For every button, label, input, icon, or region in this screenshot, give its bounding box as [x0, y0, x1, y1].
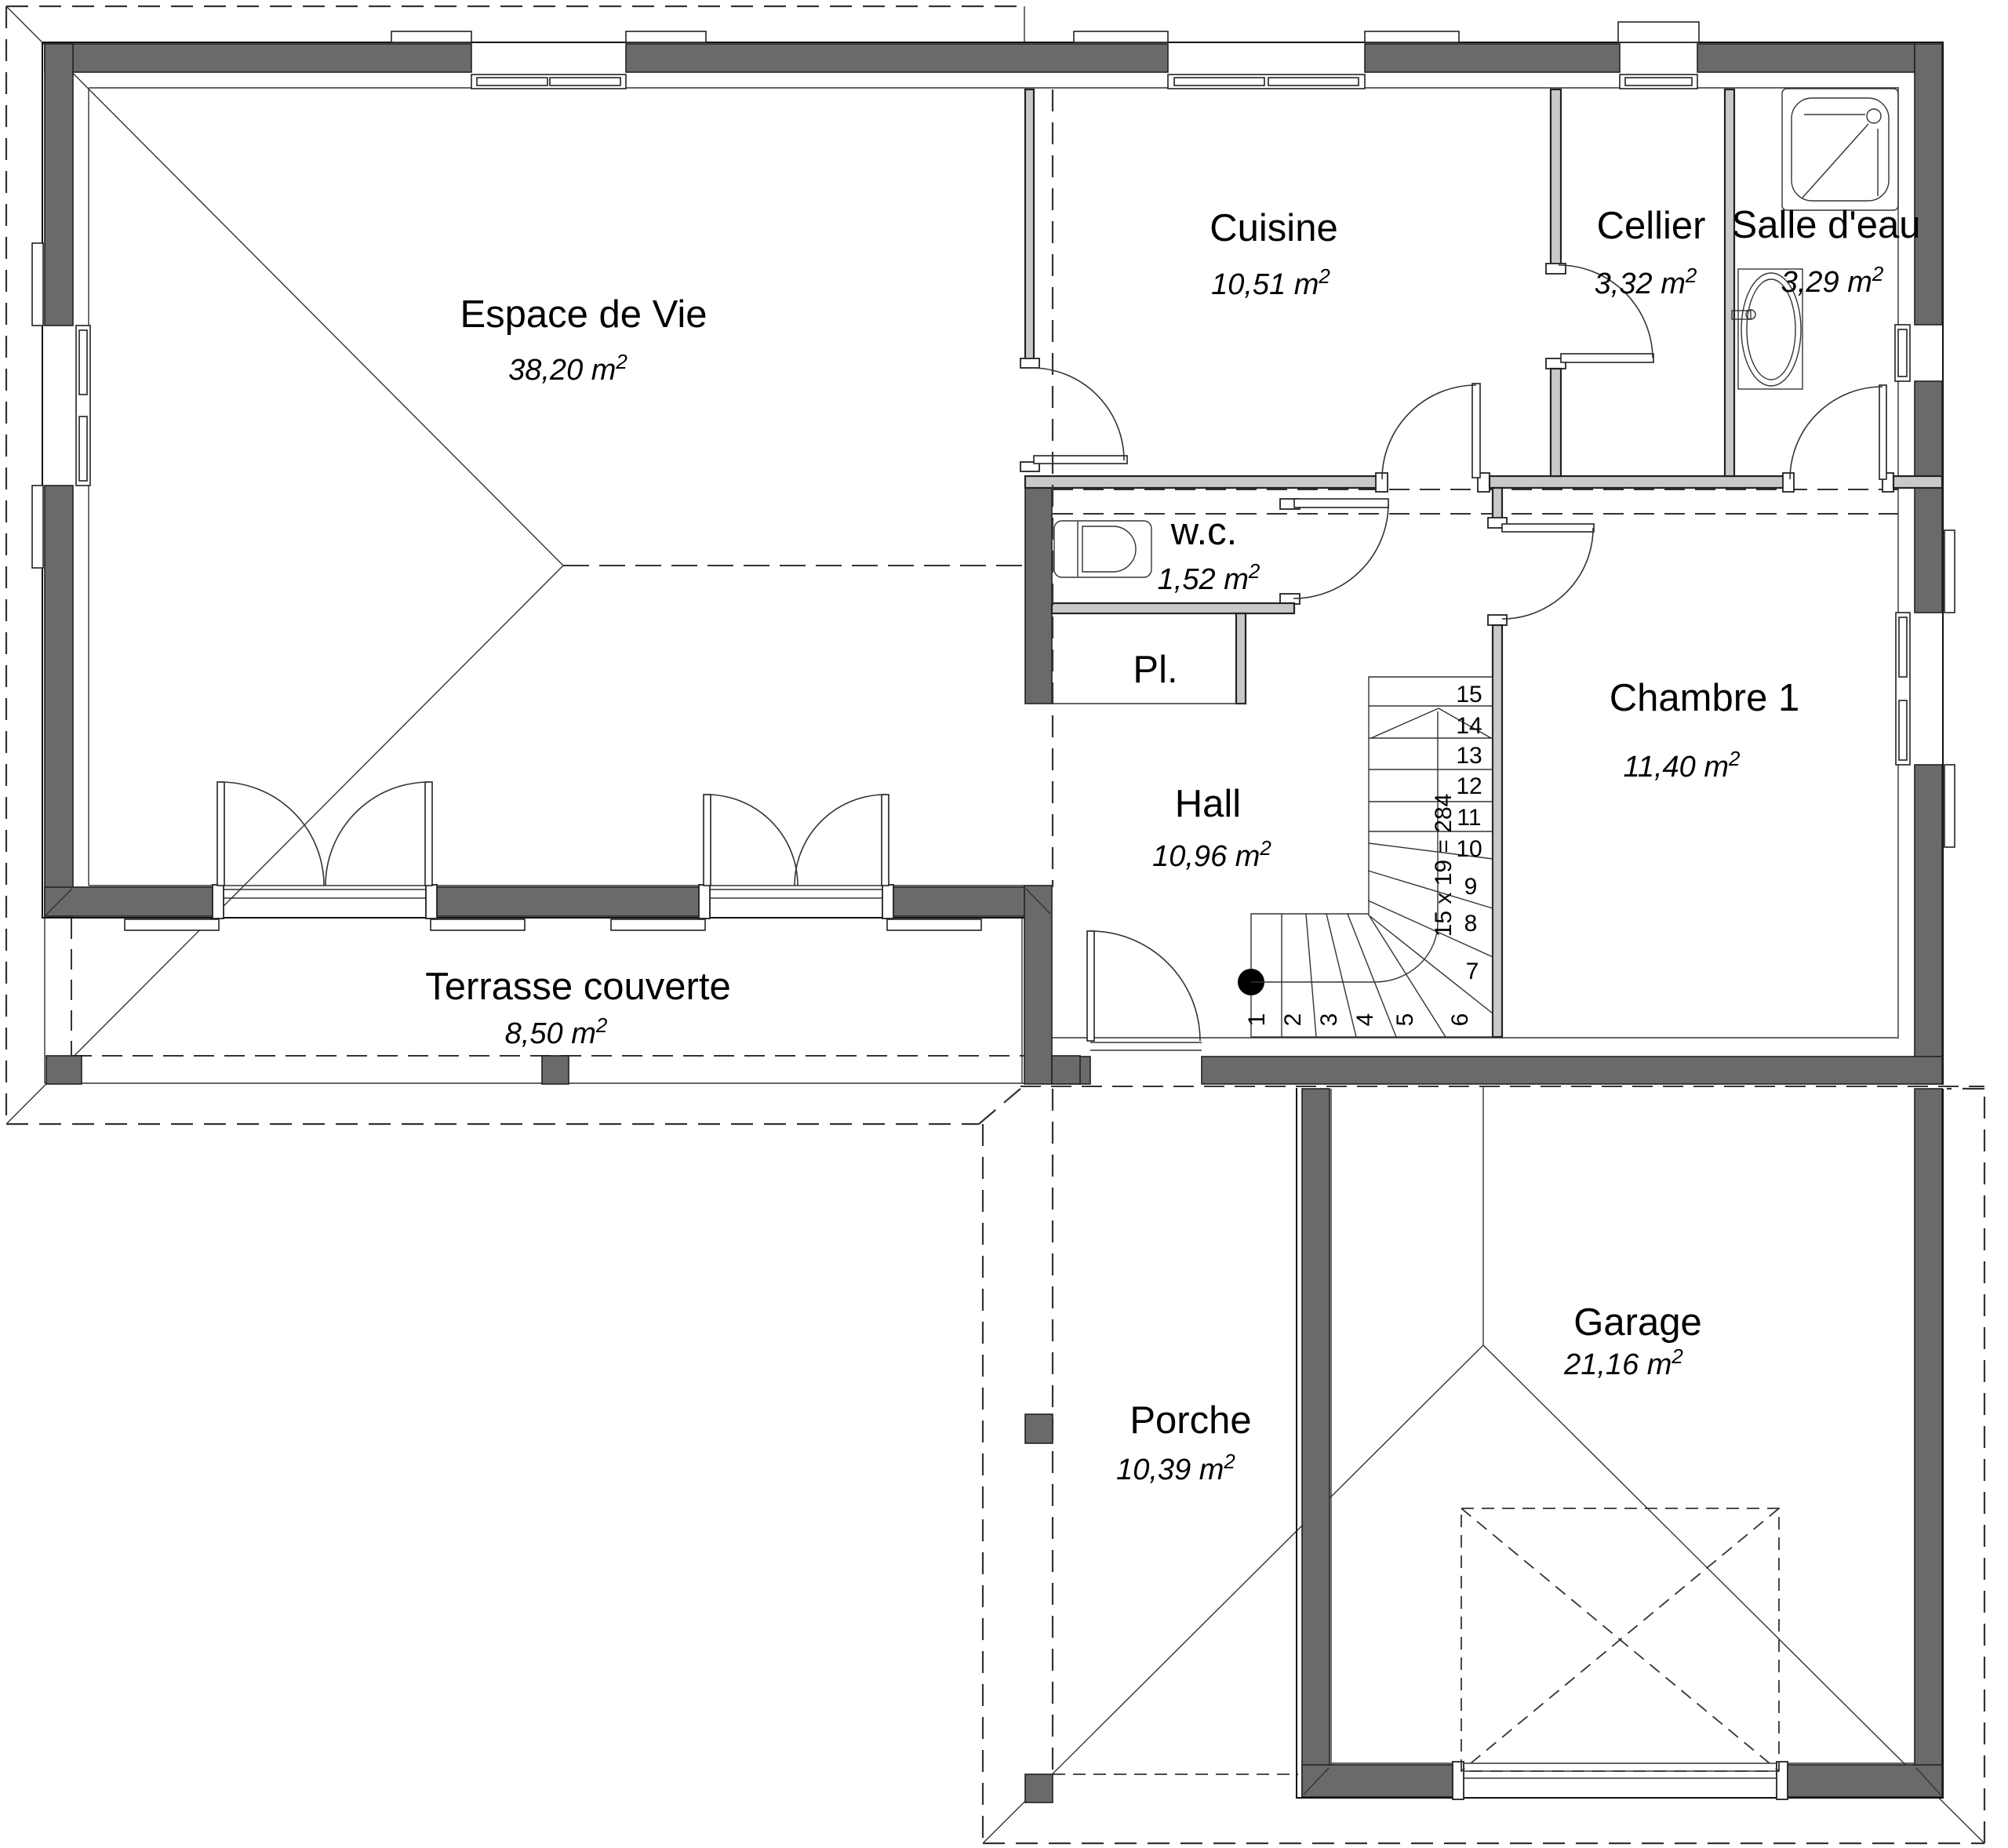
svg-text:1: 1 — [1244, 1013, 1270, 1027]
svg-text:15 x 19 = 284: 15 x 19 = 284 — [1431, 794, 1457, 937]
svg-text:21,16 m2: 21,16 m2 — [1563, 1344, 1683, 1381]
svg-text:Hall: Hall — [1175, 783, 1241, 825]
svg-text:w.c.: w.c. — [1170, 511, 1237, 553]
svg-text:Cuisine: Cuisine — [1210, 207, 1337, 249]
svg-text:1,52 m2: 1,52 m2 — [1158, 559, 1260, 596]
svg-text:11: 11 — [1457, 805, 1481, 831]
svg-text:15: 15 — [1456, 682, 1482, 708]
svg-text:3: 3 — [1316, 1013, 1342, 1027]
svg-text:Chambre 1: Chambre 1 — [1610, 677, 1799, 719]
svg-text:Pl.: Pl. — [1133, 649, 1177, 691]
svg-text:Terrasse couverte: Terrasse couverte — [425, 966, 730, 1008]
svg-text:8: 8 — [1464, 911, 1478, 937]
svg-text:3,32 m2: 3,32 m2 — [1595, 264, 1697, 300]
svg-text:Porche: Porche — [1129, 1399, 1251, 1442]
svg-text:10,51 m2: 10,51 m2 — [1211, 264, 1330, 301]
svg-text:11,40 m2: 11,40 m2 — [1624, 747, 1741, 784]
svg-text:14: 14 — [1456, 713, 1482, 739]
svg-text:Espace de Vie: Espace de Vie — [460, 293, 707, 336]
svg-text:5: 5 — [1392, 1013, 1418, 1027]
svg-text:12: 12 — [1456, 773, 1482, 799]
svg-text:3,29 m2: 3,29 m2 — [1781, 262, 1884, 299]
svg-text:38,20 m2: 38,20 m2 — [508, 350, 627, 387]
svg-text:9: 9 — [1464, 874, 1478, 900]
svg-text:10,39 m2: 10,39 m2 — [1116, 1450, 1235, 1486]
svg-text:2: 2 — [1280, 1013, 1306, 1027]
svg-text:13: 13 — [1456, 743, 1482, 769]
svg-text:10: 10 — [1456, 836, 1482, 862]
svg-text:6: 6 — [1447, 1013, 1473, 1027]
svg-text:10,96 m2: 10,96 m2 — [1152, 836, 1271, 873]
svg-text:8,50 m2: 8,50 m2 — [505, 1013, 608, 1050]
svg-text:Salle d'eau: Salle d'eau — [1732, 204, 1921, 246]
svg-text:4: 4 — [1352, 1013, 1378, 1027]
svg-text:Garage: Garage — [1573, 1301, 1701, 1344]
svg-text:7: 7 — [1466, 959, 1479, 984]
svg-text:Cellier: Cellier — [1597, 205, 1706, 247]
